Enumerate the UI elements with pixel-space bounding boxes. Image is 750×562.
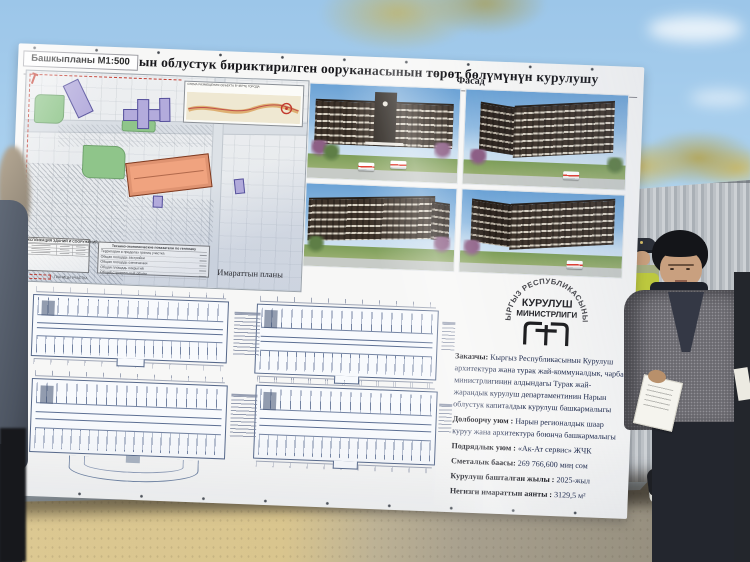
entrance-canopy-arc bbox=[68, 455, 199, 484]
floor-plan-4 bbox=[253, 385, 438, 466]
cloud bbox=[648, 16, 743, 42]
floor-plan-3 bbox=[29, 378, 228, 459]
construction-site-photo: Нарын облустук бириктирилген ооруканасын… bbox=[0, 0, 750, 562]
eye bbox=[686, 268, 690, 270]
construction-ministry-logo: КЫРГЫЗ РЕСПУБЛИКАСЫНЫН КУРУЛУШ МИНИСТРЛИ… bbox=[494, 272, 601, 350]
ambulance bbox=[358, 162, 374, 171]
masterplan-label: Башкыпланы М1:500 bbox=[23, 50, 138, 70]
svg-text:МИНИСТРЛИГИ: МИНИСТРЛИГИ bbox=[516, 309, 577, 320]
ambulance bbox=[563, 171, 579, 180]
info-row-customer: Заказчы: Кыргыз Республикасынын Курулуш … bbox=[453, 350, 625, 416]
room-explication-list bbox=[441, 322, 455, 352]
floor-plan-2 bbox=[254, 304, 439, 381]
facade-renderings bbox=[302, 82, 631, 280]
hair-fringe bbox=[655, 242, 705, 257]
room-explication-list bbox=[438, 404, 452, 434]
room-explication-list bbox=[233, 312, 261, 357]
eyebrows bbox=[668, 264, 694, 266]
construction-info-billboard: Нарын облустук бириктирилген ооруканасын… bbox=[1, 43, 644, 519]
man-holding-papers bbox=[624, 230, 750, 562]
paper-shading bbox=[19, 71, 309, 292]
masterplan-drawing: СХЕМА РАЗМЕЩЕНИЯ ОБЪЕКТА В ЧЕРТЕ ГОРОДА … bbox=[18, 70, 310, 293]
ambulance bbox=[390, 160, 406, 169]
rendering-corner-view bbox=[462, 88, 630, 190]
info-row-designer: Долбоорчу уюм : Нарын регионалдык шаар к… bbox=[452, 413, 623, 444]
project-info-block: Заказчы: Кыргыз Республикасынын Курулуш … bbox=[450, 350, 626, 506]
rendering-side-view bbox=[302, 182, 457, 272]
rendering-front-view bbox=[306, 82, 462, 184]
ministry-emblem-icon: КЫРГЫЗ РЕСПУБЛИКАСЫНЫН КУРУЛУШ МИНИСТРЛИ… bbox=[494, 272, 601, 350]
bystander-right-sleeve bbox=[734, 272, 750, 562]
eye bbox=[670, 268, 674, 270]
rendering-perspective-view bbox=[458, 188, 625, 278]
ambulance bbox=[566, 260, 582, 269]
foreground-shadow bbox=[0, 428, 26, 562]
room-explication-list bbox=[230, 394, 258, 439]
cloud bbox=[690, 90, 750, 106]
info-row-area: Негизги имараттын аянты : 3129,5 м² bbox=[450, 485, 620, 504]
pants bbox=[652, 422, 744, 562]
floor-plan-1 bbox=[31, 294, 229, 363]
